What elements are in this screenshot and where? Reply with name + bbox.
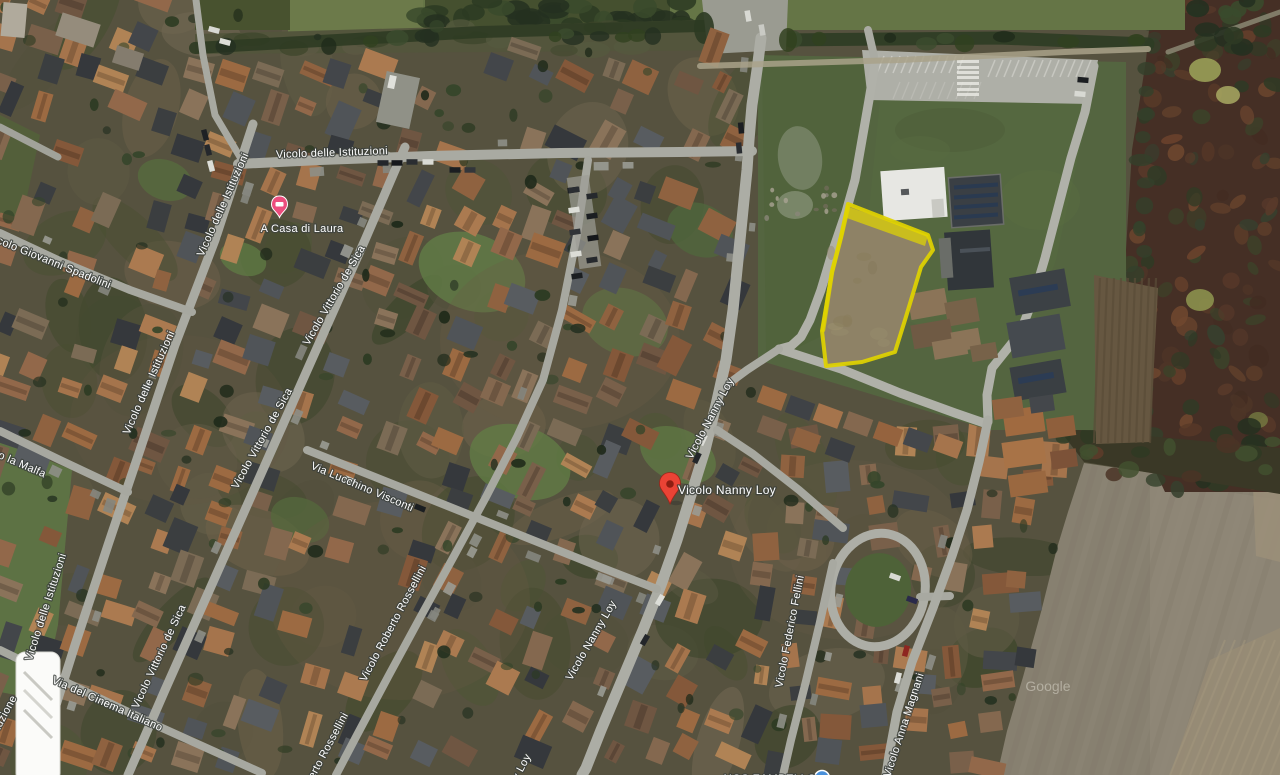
svg-text:Google: Google xyxy=(1025,678,1070,694)
svg-text:Vicolo Nanny Loy: Vicolo Nanny Loy xyxy=(678,483,776,497)
svg-text:A Casa di Laura: A Casa di Laura xyxy=(261,223,344,235)
